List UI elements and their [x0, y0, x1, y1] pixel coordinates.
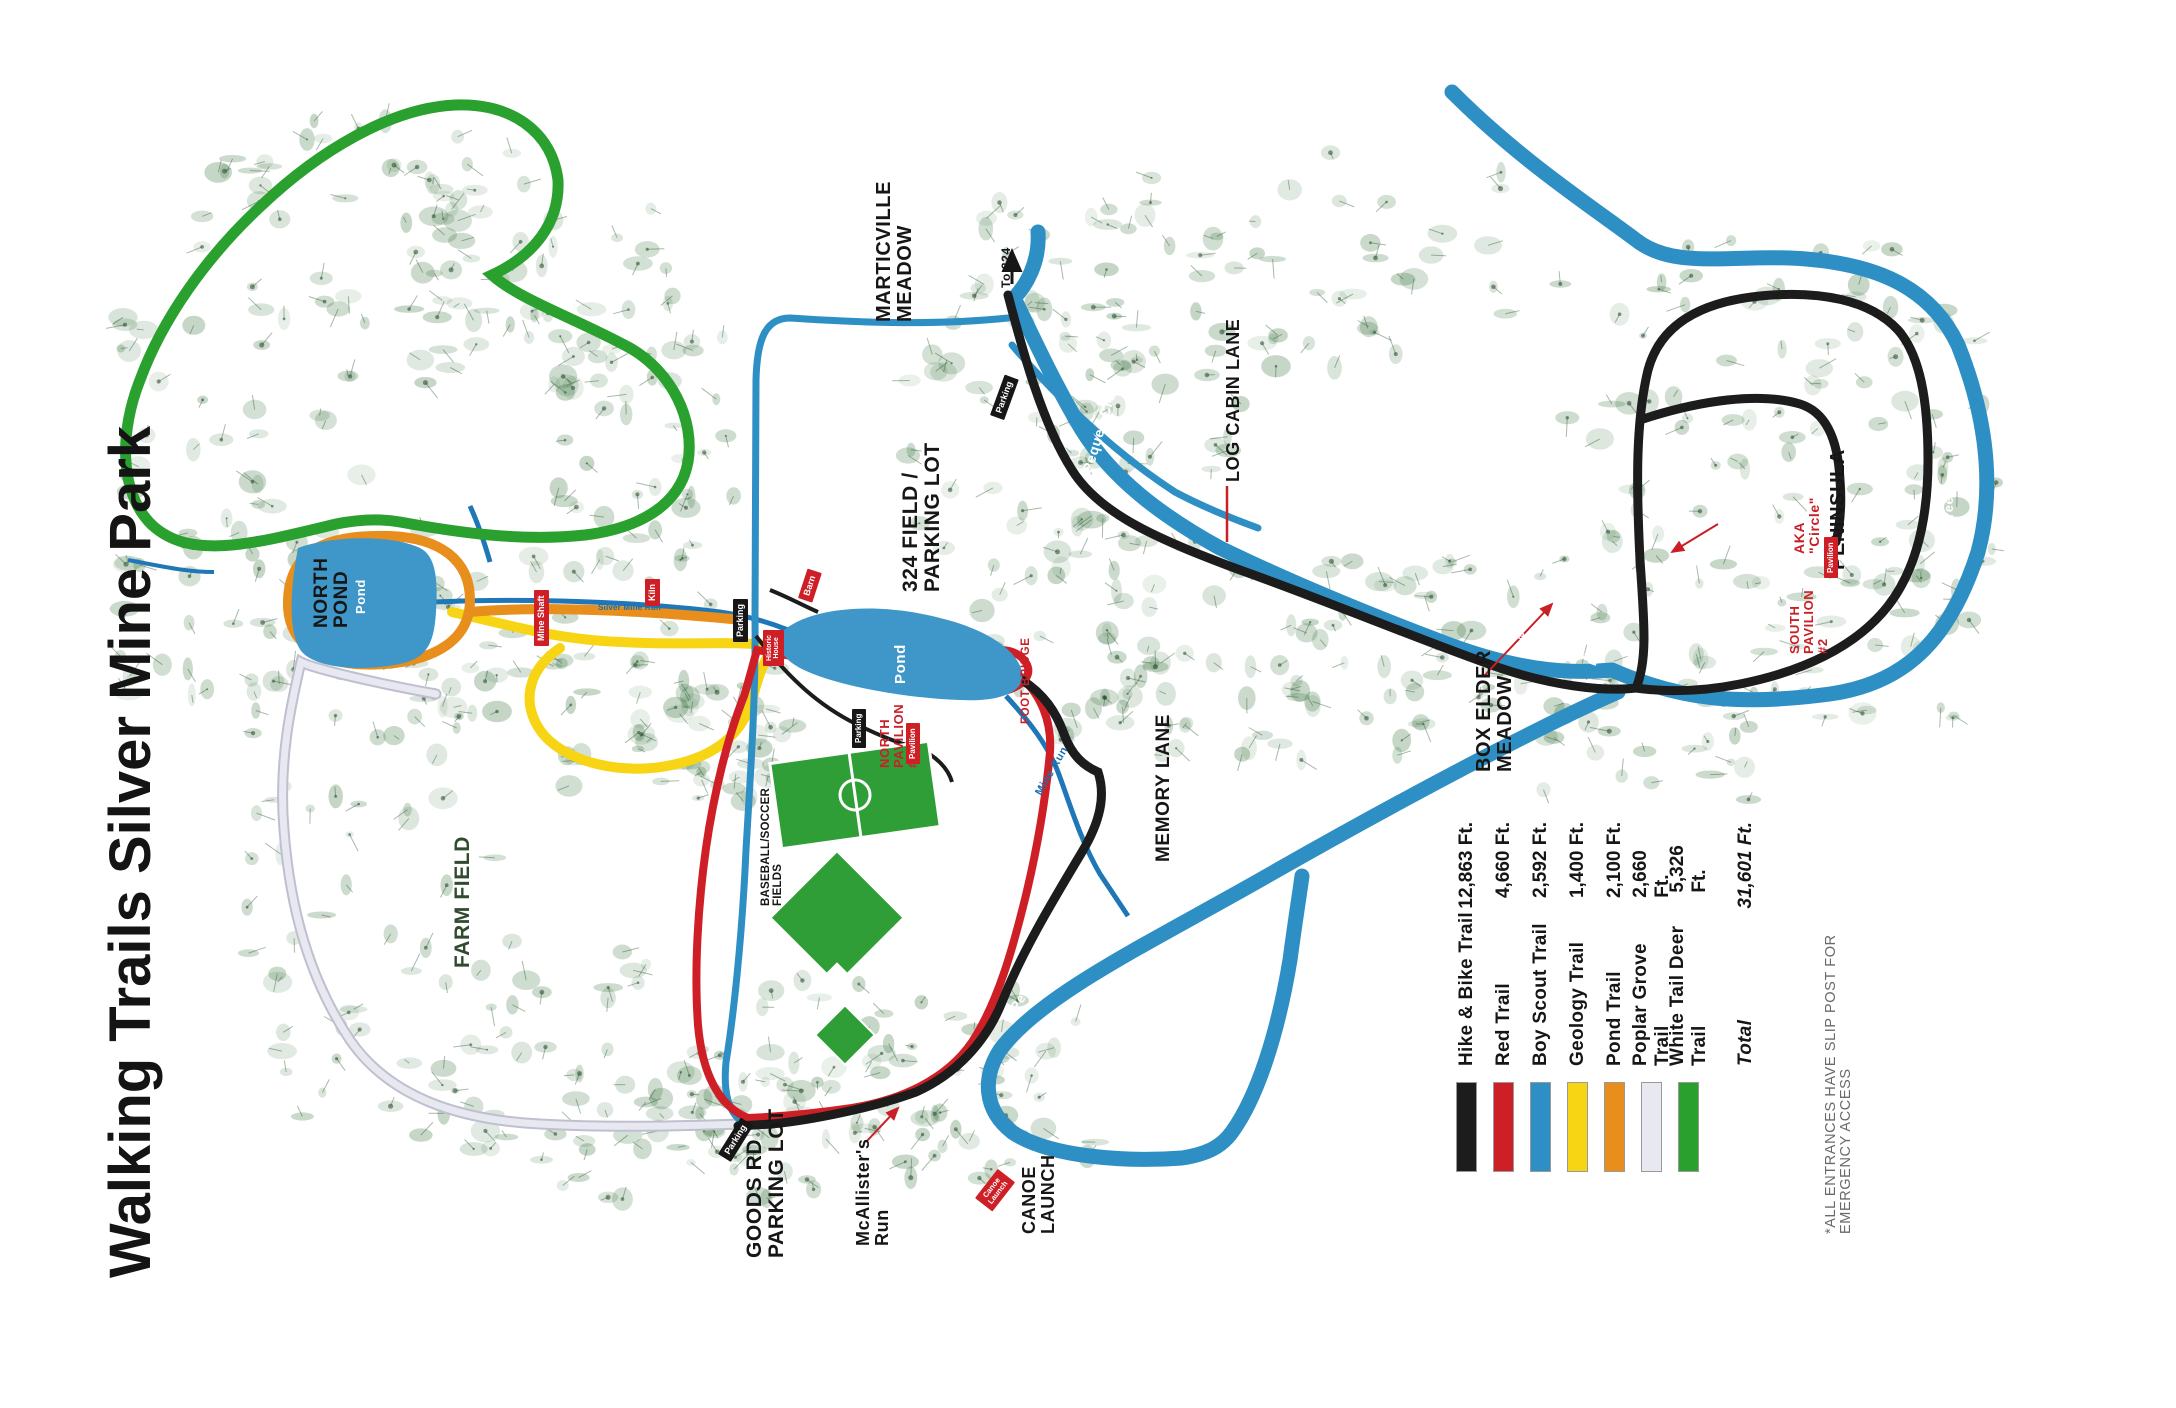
legend-name: Geology Trail	[1567, 942, 1589, 1066]
legend-name: Hike & Bike Trail	[1456, 912, 1478, 1066]
label-canoe-launch: CANOE LAUNCH	[1020, 1154, 1058, 1234]
pequea-creek	[1014, 92, 1987, 700]
label-memory-lane: MEMORY LANE	[1154, 714, 1174, 862]
legend-distance: 2,100 Ft.	[1604, 820, 1626, 898]
label-ballfields: BASEBALL/SOCCER FIELDS	[760, 788, 784, 906]
marker-historic-house: Historic House	[763, 630, 784, 666]
label-mcallisters-run: McAllister's Run	[854, 1138, 892, 1246]
legend-row: Pond Trail 2,100 Ft.	[1596, 820, 1633, 1172]
legend-distance: 2,592 Ft.	[1530, 820, 1552, 898]
marker-mine-shaft: Mine Shaft	[534, 590, 549, 646]
legend-total-value: 31,601 Ft.	[1735, 820, 1757, 909]
label-goods-rd-parking: GOODS RD PARKING LOT	[744, 1108, 789, 1258]
label-to-324: To 324	[1000, 247, 1013, 288]
park-map: Walking Trails Silver Mine Park MARTICVI…	[0, 0, 2176, 1408]
label-south-pavilion: SOUTH PAVILION #2	[1788, 590, 1829, 654]
label-log-cabin-lane: LOG CABIN LANE	[1224, 319, 1243, 482]
legend-name: Red Trail	[1493, 983, 1515, 1066]
label-north-pond-water: Pond	[354, 579, 368, 614]
label-box-elder-meadow: BOX ELDER MEADOW	[1474, 650, 1516, 772]
legend-swatch-geology	[1567, 1082, 1588, 1172]
legend-row: Poplar Grove Trail 2,660 Ft.	[1633, 820, 1670, 1172]
legend-distance: 4,660 Ft.	[1493, 820, 1515, 898]
legend-row: Boy Scout Trail 2,592 Ft.	[1522, 820, 1559, 1172]
legend-row: White Tail Deer Trail 5,326 Ft.	[1670, 820, 1707, 1172]
legend-distance: 5,326 Ft.	[1667, 820, 1711, 893]
label-324-field: 324 FIELD / PARKING LOT	[900, 442, 945, 592]
legend-row: Geology Trail 1,400 Ft.	[1559, 820, 1596, 1172]
label-entrance-note: *ALL ENTRANCES HAVE SLIP POST FOR EMERGE…	[1824, 934, 1855, 1234]
legend-row: Hike & Bike Trail 12,863 Ft.	[1448, 820, 1485, 1172]
legend-total-label: Total	[1735, 1020, 1757, 1066]
legend-swatch-poplar	[1641, 1082, 1662, 1172]
legend-swatch-deer	[1678, 1082, 1699, 1172]
legend-name: White Tail Deer Trail	[1667, 893, 1711, 1066]
label-aka-circle: AKA "Circle"	[1792, 497, 1822, 554]
poplar-grove-trail	[283, 662, 740, 1126]
legend-distance: 12,863 Ft.	[1456, 820, 1478, 909]
legend-name: Boy Scout Trail	[1530, 923, 1552, 1066]
trail-legend: Hike & Bike Trail 12,863 Ft. Red Trail 4…	[1448, 820, 1808, 1172]
legend-swatch-red-trail	[1493, 1082, 1514, 1172]
label-farm-field: FARM FIELD	[452, 836, 474, 968]
label-marticville-meadow: MARTICVILLE MEADOW	[874, 181, 916, 322]
marker-kiln: Kiln	[645, 579, 660, 606]
legend-distance: 1,400 Ft.	[1567, 820, 1589, 898]
marker-parking-corridor: Parking	[733, 599, 748, 642]
legend-swatch-hike-bike	[1456, 1082, 1477, 1172]
legend-row: Red Trail 4,660 Ft.	[1485, 820, 1522, 1172]
label-pequea-creek-right: Pequea Creek	[1942, 489, 1956, 582]
marker-parking-fields: Parking	[852, 709, 866, 748]
marker-pavilion-north: Pavilion	[906, 723, 920, 764]
legend-total-row: Total 31,601 Ft.	[1727, 820, 1764, 1172]
baseball-field	[770, 851, 904, 1065]
label-north-pond: NORTH POND	[312, 557, 352, 628]
label-foot-bridge: FOOT BRIDGE	[1020, 638, 1032, 724]
map-title: Walking Trails Silver Mine Park	[100, 426, 161, 1278]
legend-swatch-pond-trail	[1604, 1082, 1625, 1172]
legend-name: Pond Trail	[1604, 971, 1626, 1066]
label-center-pond-water: Pond	[893, 644, 909, 684]
marker-pavilion-south: Pavilion	[1824, 537, 1838, 578]
legend-swatch-boy-scout	[1530, 1082, 1551, 1172]
poplar-grove-trail-casing	[283, 662, 740, 1126]
